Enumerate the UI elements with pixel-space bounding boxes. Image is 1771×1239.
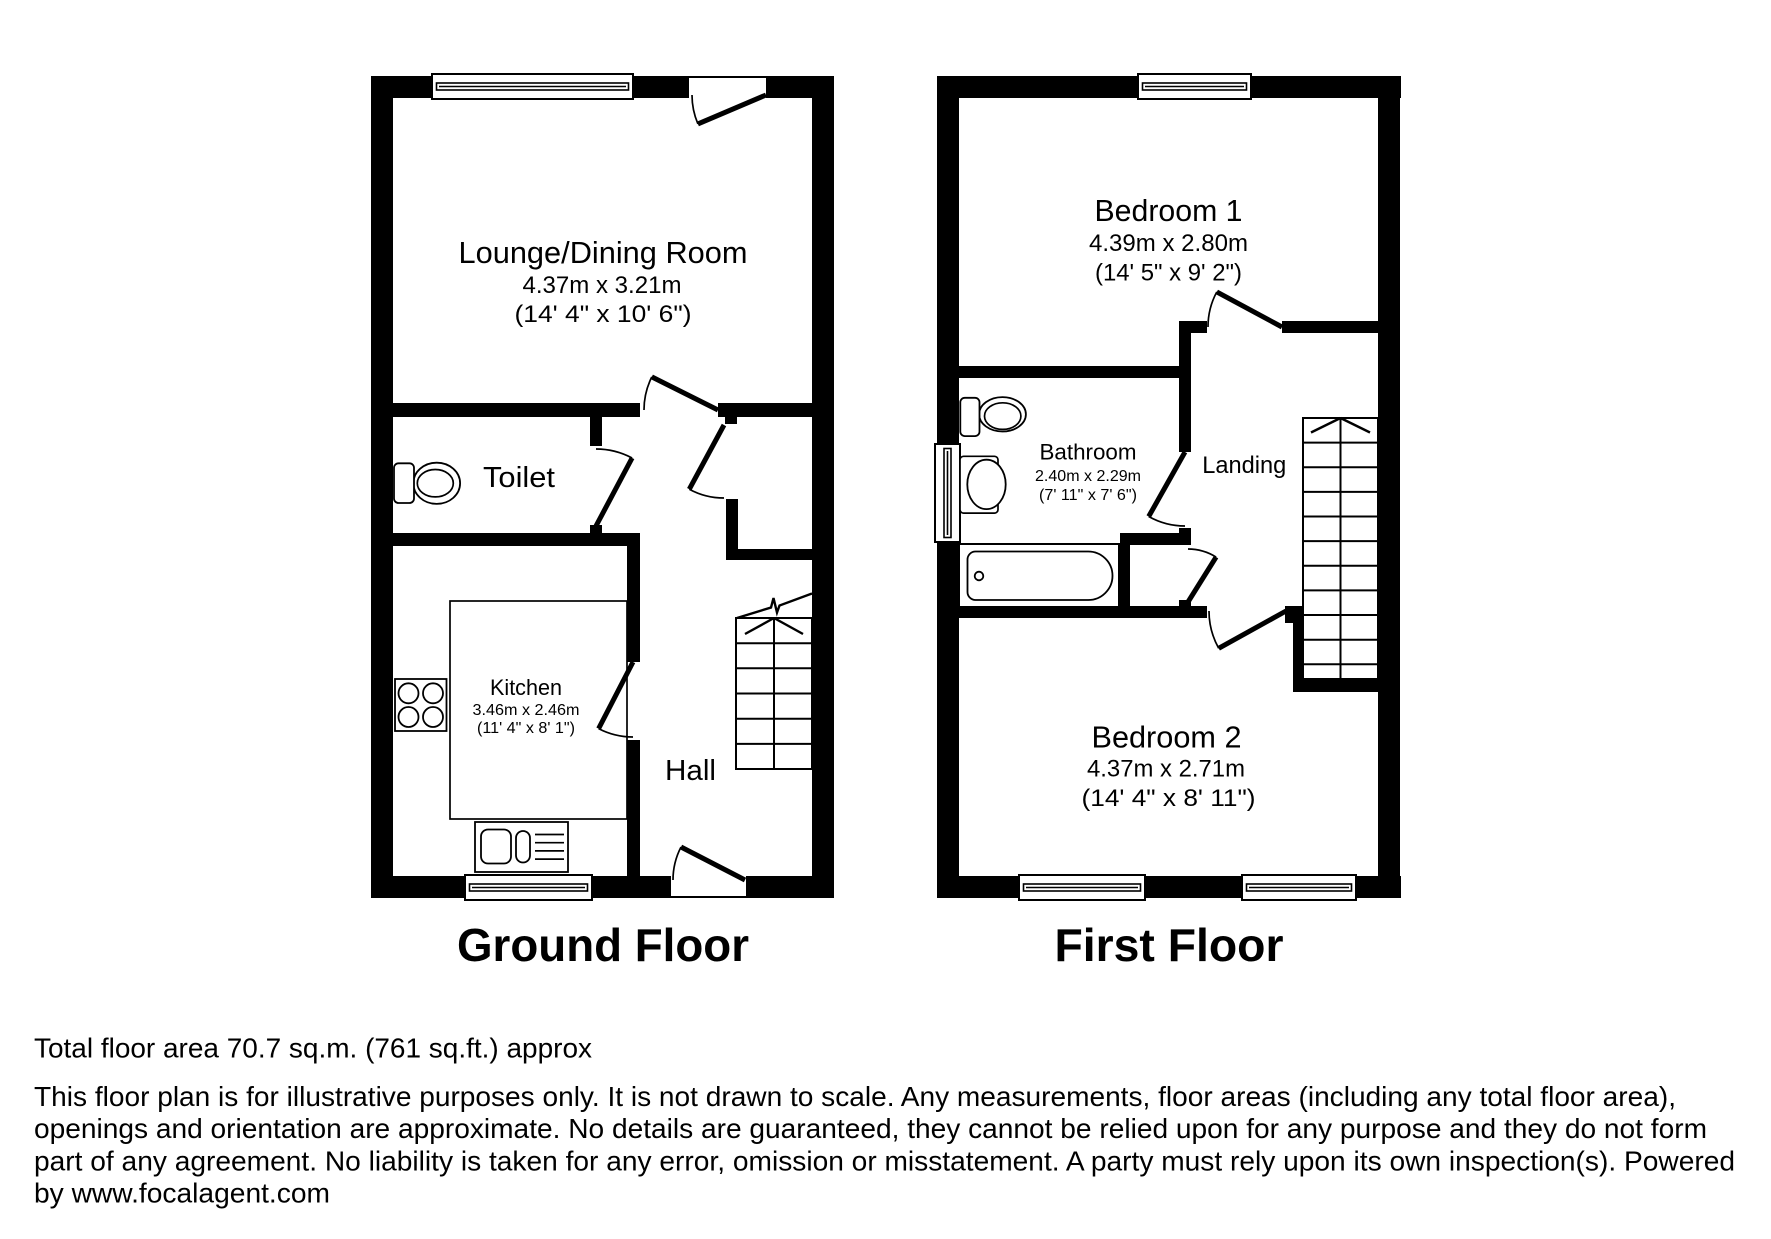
svg-text:4.39m x 2.80m: 4.39m x 2.80m [1089, 230, 1248, 257]
svg-text:First Floor: First Floor [1055, 919, 1284, 971]
svg-text:2.40m x 2.29m: 2.40m x 2.29m [1035, 468, 1141, 485]
svg-text:3.46m x 2.46m: 3.46m x 2.46m [473, 702, 580, 719]
svg-text:(7' 11" x 7' 6"): (7' 11" x 7' 6") [1039, 487, 1137, 504]
svg-text:Landing: Landing [1202, 452, 1286, 479]
svg-text:(14' 5" x 9' 2"): (14' 5" x 9' 2") [1095, 260, 1242, 287]
svg-text:Lounge/Dining Room: Lounge/Dining Room [459, 235, 748, 270]
svg-text:Bathroom: Bathroom [1040, 440, 1137, 465]
svg-text:Total floor area 70.7 sq.m. (7: Total floor area 70.7 sq.m. (761 sq.ft.)… [34, 1033, 592, 1064]
svg-text:4.37m x 2.71m: 4.37m x 2.71m [1087, 755, 1245, 782]
svg-text:Ground Floor: Ground Floor [457, 919, 749, 971]
svg-text:by www.focalagent.com: by www.focalagent.com [34, 1178, 330, 1209]
svg-text:part of any agreement. No liab: part of any agreement. No liability is t… [34, 1145, 1735, 1176]
svg-text:This floor plan is for illustr: This floor plan is for illustrative purp… [34, 1081, 1676, 1112]
svg-text:4.37m x 3.21m: 4.37m x 3.21m [523, 272, 682, 299]
svg-text:Hall: Hall [665, 755, 716, 787]
svg-text:(14' 4" x 8' 11"): (14' 4" x 8' 11") [1082, 785, 1256, 812]
svg-text:Bedroom 1: Bedroom 1 [1095, 193, 1243, 228]
svg-text:Toilet: Toilet [483, 462, 555, 494]
svg-text:(11' 4" x 8' 1"): (11' 4" x 8' 1") [477, 720, 575, 737]
svg-text:Kitchen: Kitchen [490, 675, 562, 700]
svg-text:(14' 4" x 10' 6"): (14' 4" x 10' 6") [515, 301, 692, 328]
svg-text:Bedroom 2: Bedroom 2 [1092, 719, 1242, 754]
svg-text:openings and orientation are a: openings and orientation are approximate… [34, 1113, 1707, 1144]
